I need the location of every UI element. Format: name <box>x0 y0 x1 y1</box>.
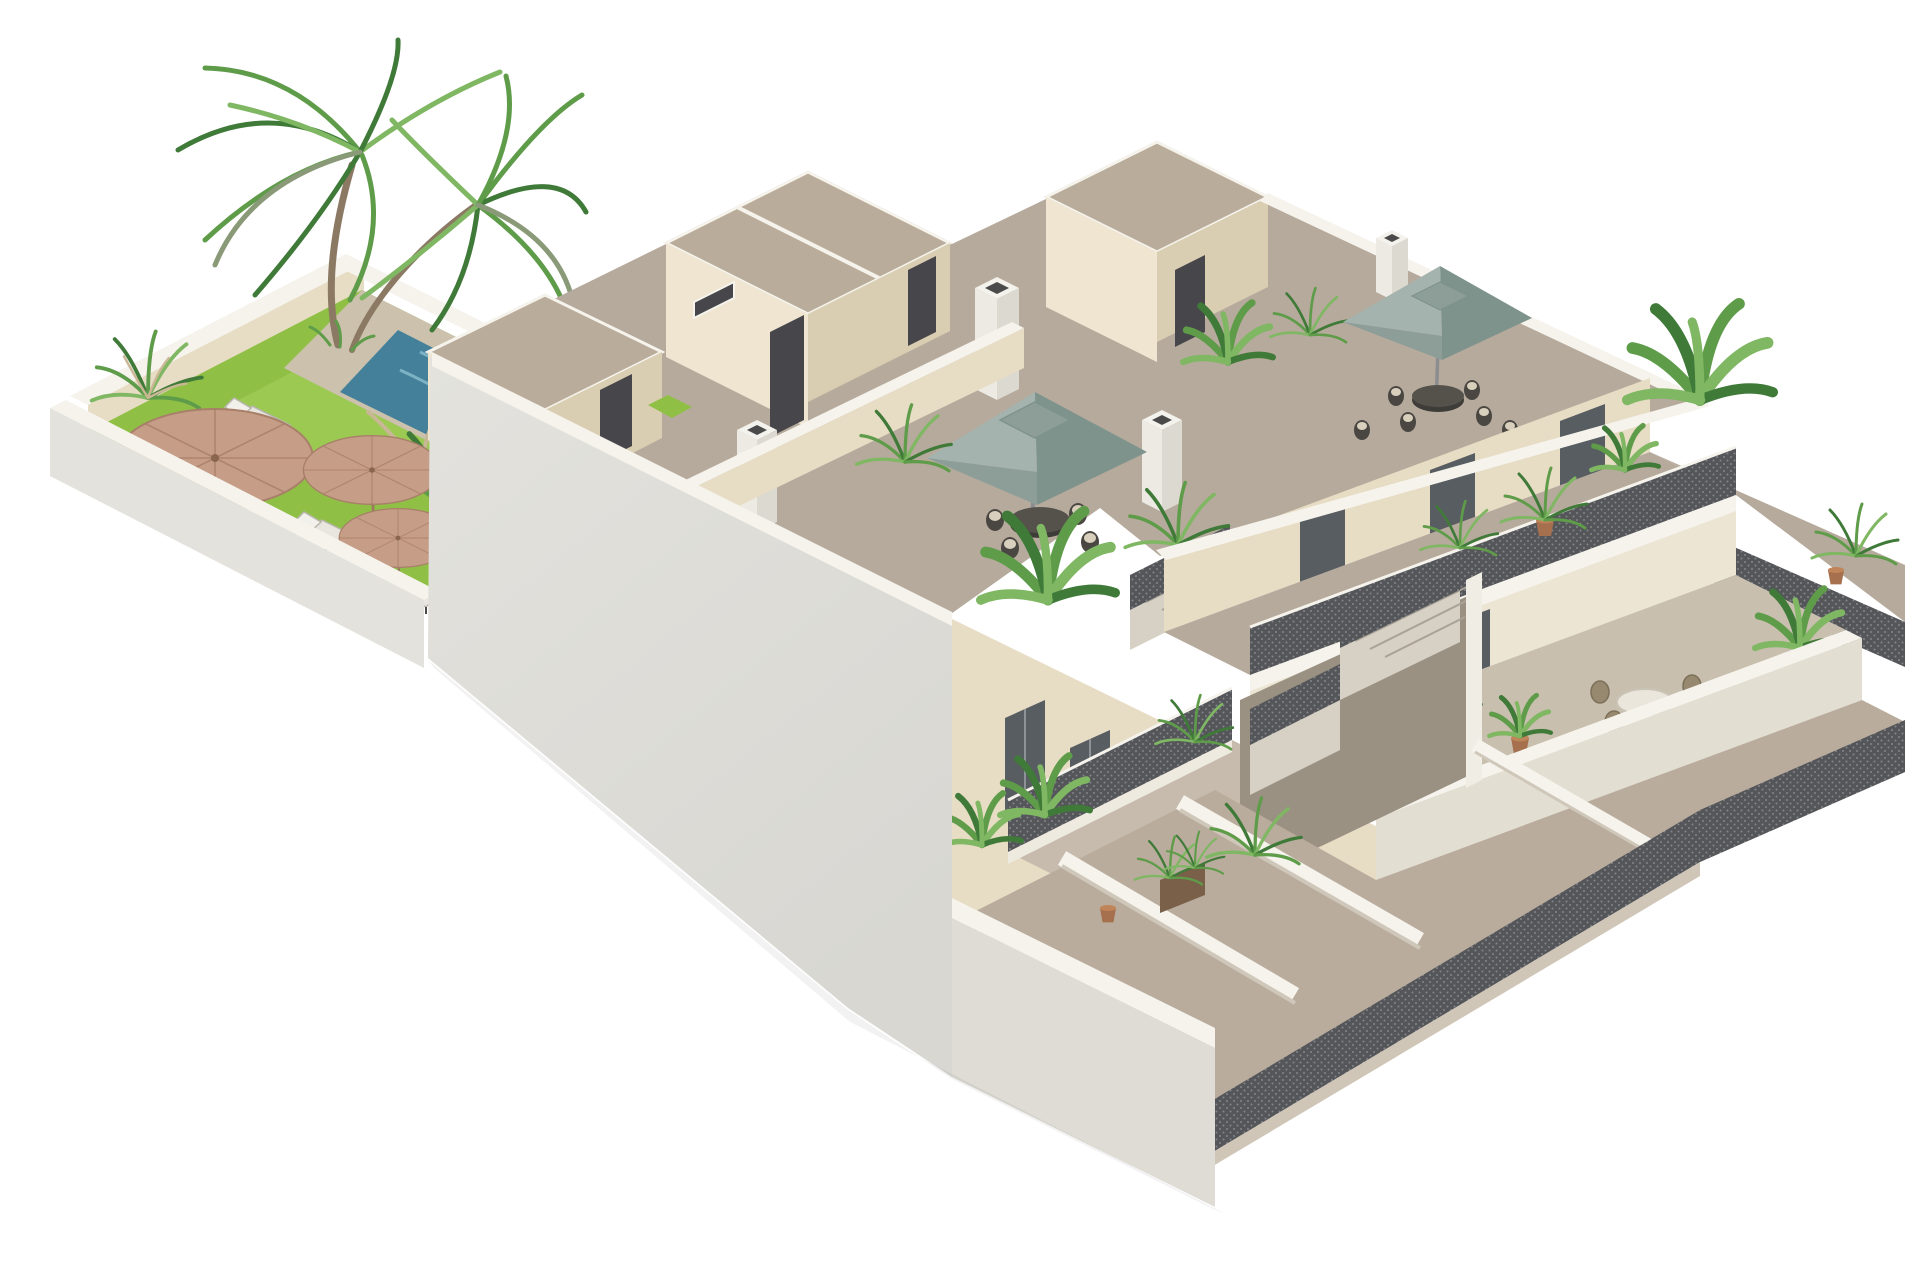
bulkhead-b-door-right <box>908 256 936 346</box>
architectural-render <box>0 0 1920 1280</box>
bulkhead-b-door-left <box>770 315 804 437</box>
chimney-3 <box>1142 410 1182 512</box>
render-canvas: Isometric 3D cutaway rendering of a thre… <box>0 0 1920 1280</box>
